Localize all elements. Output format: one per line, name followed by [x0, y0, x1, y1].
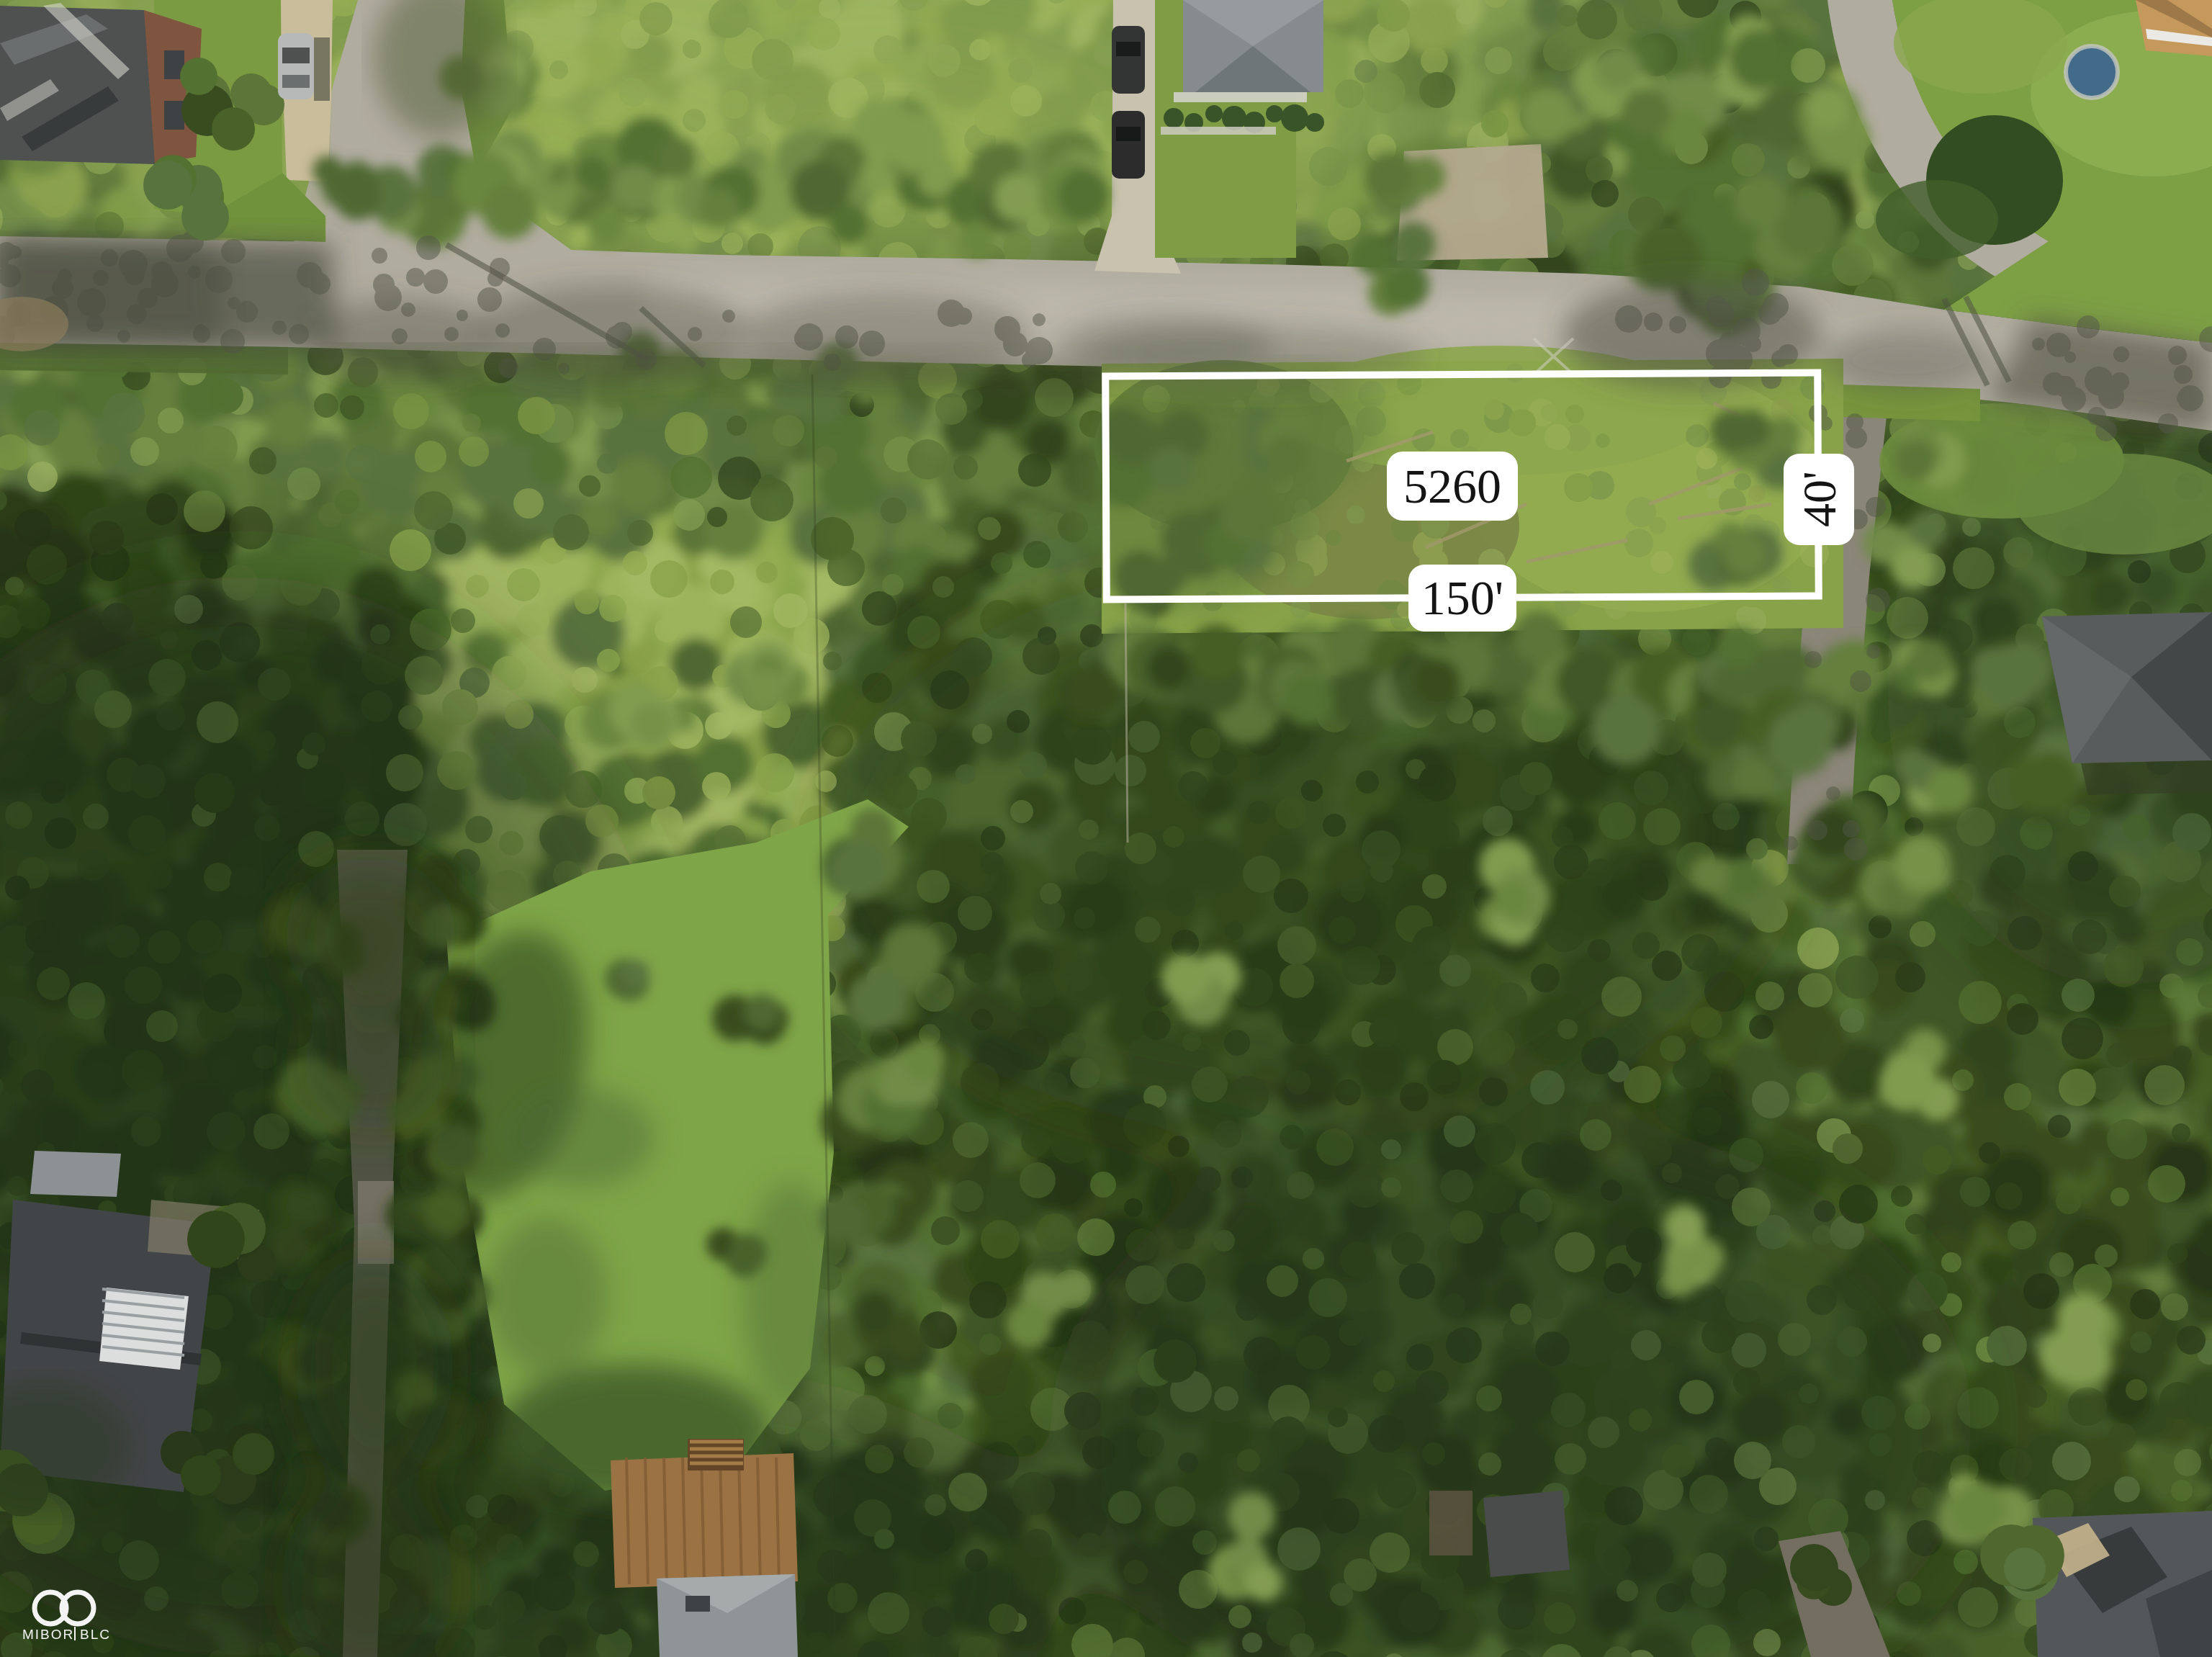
- svg-text:40': 40': [1793, 471, 1845, 527]
- svg-text:MIBOR: MIBOR: [22, 1627, 74, 1642]
- svg-text:150': 150': [1421, 570, 1503, 625]
- svg-text:BLC: BLC: [80, 1627, 111, 1642]
- svg-text:5260: 5260: [1403, 459, 1501, 513]
